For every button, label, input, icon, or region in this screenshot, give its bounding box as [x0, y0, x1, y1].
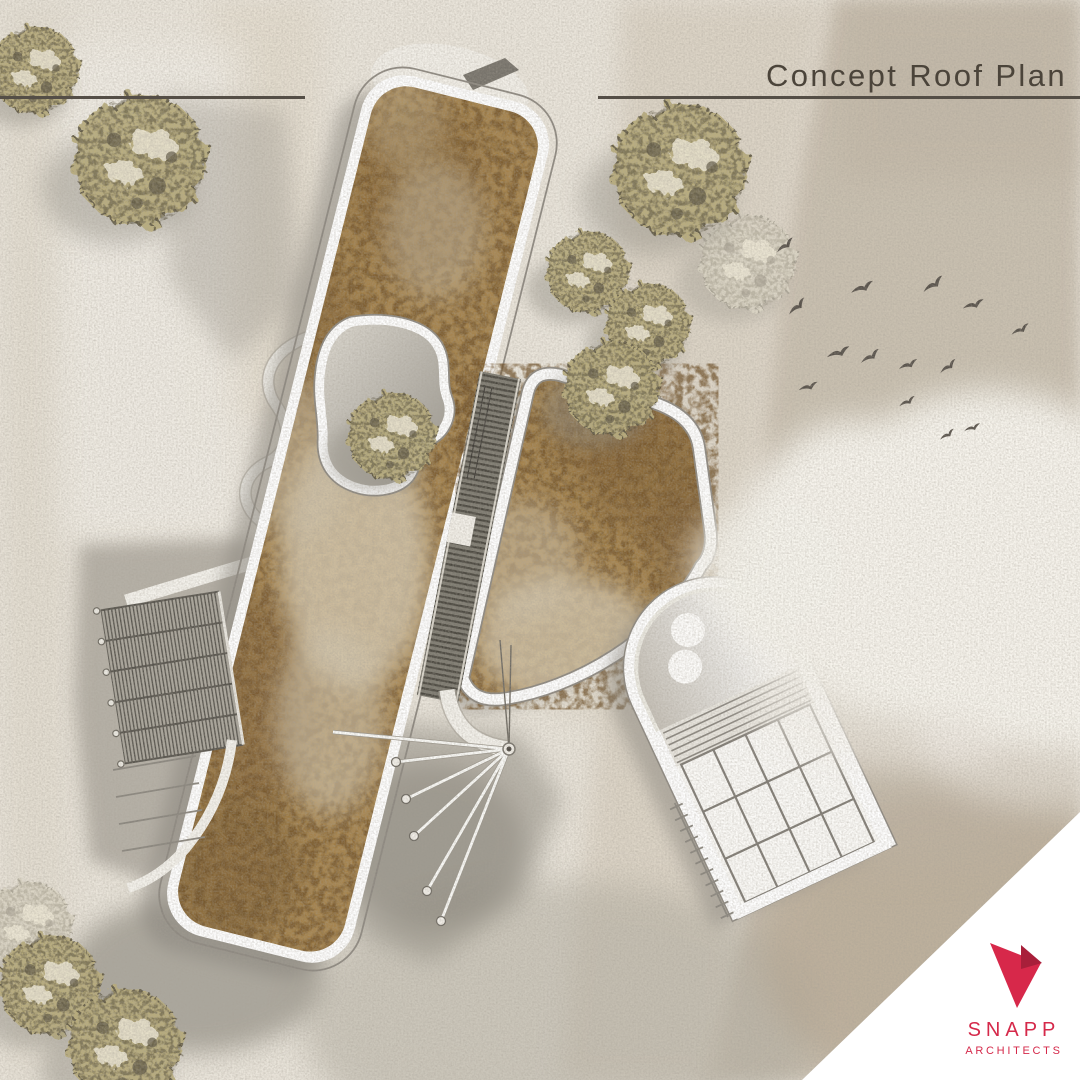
paper-grain-overlay	[0, 0, 1080, 1080]
title-rule-left	[0, 96, 305, 99]
roof-plan-artwork	[0, 0, 1080, 1080]
brand-block: SNAPP ARCHITECTS	[952, 938, 1076, 1057]
snapp-logo-icon	[984, 938, 1044, 1010]
page-title: Concept Roof Plan	[766, 58, 1067, 94]
brand-subtitle: ARCHITECTS	[952, 1045, 1076, 1057]
brand-name: SNAPP	[952, 1019, 1076, 1042]
title-rule-right	[598, 96, 1080, 99]
poster-canvas: Concept Roof Plan SNAPP ARCHITECTS	[0, 0, 1080, 1080]
